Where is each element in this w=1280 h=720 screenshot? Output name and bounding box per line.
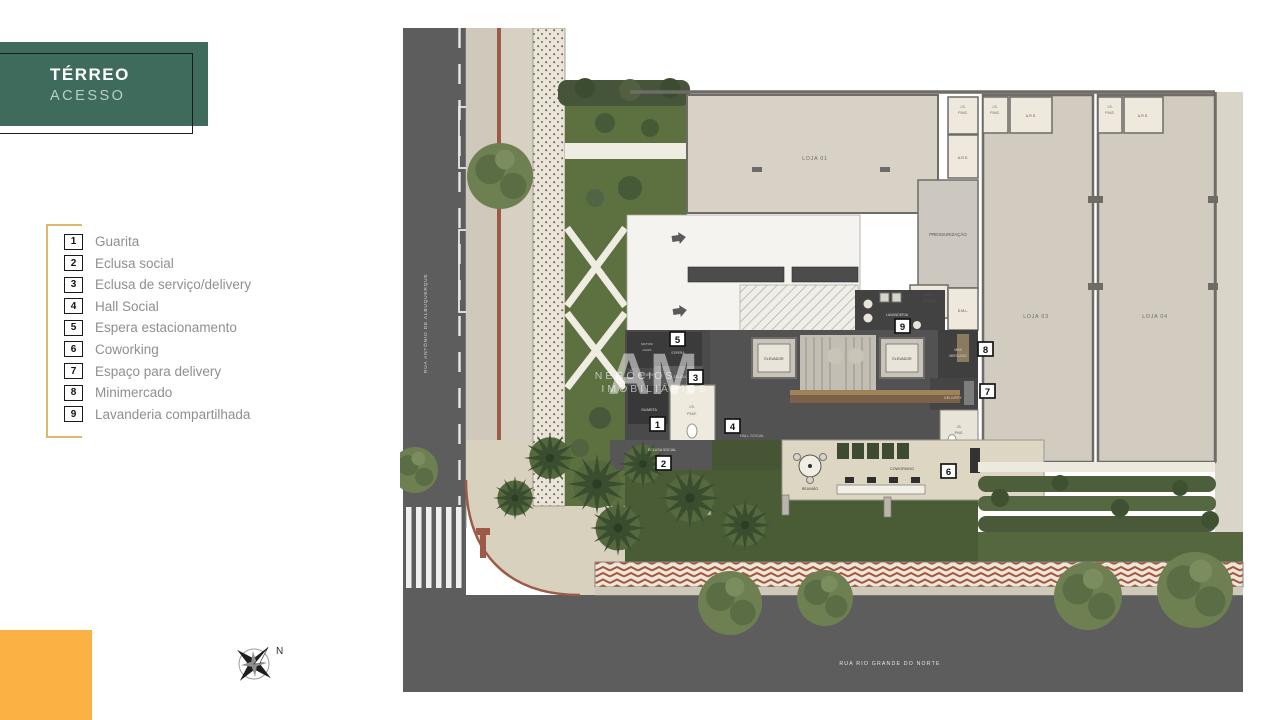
compass-north-label: N	[276, 646, 283, 657]
marker-6: 6	[941, 464, 956, 478]
svg-text:NEGÓCIOS: NEGÓCIOS	[595, 369, 676, 382]
svg-text:P.N.E.: P.N.E.	[687, 412, 696, 416]
legend-item: 6Coworking	[64, 342, 251, 357]
legend-item-number: 3	[64, 277, 83, 293]
marker-1: 1	[650, 417, 665, 431]
legend-item-number: 2	[64, 255, 83, 271]
legend-item: 1Guarita	[64, 234, 251, 249]
svg-text:3: 3	[693, 373, 698, 384]
svg-text:ELEVADOR: ELEVADOR	[764, 357, 784, 361]
svg-text:6: 6	[946, 467, 951, 478]
room-loja-01	[687, 95, 938, 213]
svg-text:9: 9	[900, 322, 905, 333]
site-plan: LOJA 01 LOJA 03 LOJA 04 I.S. P.N.E. I.S.…	[400, 28, 1245, 692]
legend-item-label: Hall Social	[95, 299, 159, 314]
coworking-desk	[837, 485, 925, 494]
legend-item: 5Espera estacionamento	[64, 320, 251, 335]
legend-item-number: 6	[64, 341, 83, 357]
label-delivery: DELIVERY	[944, 396, 962, 400]
marker-3: 3	[688, 370, 703, 384]
legend-item-label: Eclusa de serviço/delivery	[95, 277, 251, 292]
coworking-planters	[837, 443, 909, 459]
svg-text:I.S.: I.S.	[957, 425, 962, 429]
svg-text:CÂMARA: CÂMARA	[922, 299, 937, 303]
svg-text:MERCADO: MERCADO	[949, 354, 967, 358]
marker-8: 8	[978, 342, 993, 356]
garage-door	[688, 267, 784, 282]
floor-subtitle: ACESSO	[50, 88, 208, 104]
floor-title: TÉRREO	[50, 65, 208, 85]
svg-text:I.S.: I.S.	[1107, 105, 1112, 109]
mosaic-walk-horizontal	[595, 562, 1243, 587]
legend-item-label: Coworking	[95, 342, 159, 357]
legend-item: 4Hall Social	[64, 299, 251, 314]
label-loja01: LOJA 01	[802, 156, 828, 162]
label-pressurizacao: PRESSURIZAÇÃO	[929, 232, 967, 237]
page: { "header": { "title": "TÉRREO", "subtit…	[0, 0, 1280, 720]
legend-item-number: 8	[64, 385, 83, 401]
svg-text:P.N.E.: P.N.E.	[958, 111, 967, 115]
label-coworking: COWORKING	[890, 467, 914, 471]
svg-text:1: 1	[655, 420, 661, 431]
street-name-left: RUA ANTÔNIO DE ALBUQUERQUE	[422, 274, 429, 373]
legend-item-number: 9	[64, 406, 83, 422]
marker-7: 7	[980, 384, 995, 398]
legend-item-label: Eclusa social	[95, 256, 174, 271]
legend-item-label: Espera estacionamento	[95, 320, 237, 335]
compass-star	[223, 633, 285, 695]
label-guarita: GUARITA	[641, 408, 657, 412]
marker-5: 5	[670, 332, 685, 346]
svg-text:ELEVADOR: ELEVADOR	[892, 357, 912, 361]
svg-text:8: 8	[983, 345, 988, 356]
legend-item-number: 7	[64, 363, 83, 379]
legend-item-number: 1	[64, 234, 83, 250]
svg-text:A.R.S.: A.R.S.	[958, 156, 968, 160]
label-hall-social: HALL SOCIAL	[740, 434, 764, 438]
room-loja-04	[1098, 95, 1215, 462]
label-loja03: LOJA 03	[1023, 314, 1049, 320]
label-reuniao: REUNIÃO	[802, 486, 819, 491]
svg-text:A.R.S.: A.R.S.	[1138, 114, 1148, 118]
legend-item-number: 4	[64, 298, 83, 314]
svg-text:5: 5	[675, 335, 681, 346]
street-name-bottom: RUA RIO GRANDE DO NORTE	[839, 661, 940, 667]
svg-text:ANTE-: ANTE-	[924, 293, 934, 297]
svg-text:D.M.L.: D.M.L.	[958, 309, 969, 313]
legend-list: 1Guarita2Eclusa social3Eclusa de serviço…	[64, 234, 251, 428]
floor-title-plate: TÉRREO ACESSO	[0, 42, 208, 126]
svg-text:P.N.E.: P.N.E.	[955, 431, 964, 435]
legend-item-label: Minimercado	[95, 385, 172, 400]
compass-rose: N	[220, 628, 292, 696]
legend-item-number: 5	[64, 320, 83, 336]
label-eclusa-social: ECLUSA SOCIAL	[648, 448, 676, 452]
legend-item-label: Espaço para delivery	[95, 364, 221, 379]
legend-item-label: Guarita	[95, 234, 139, 249]
svg-text:I.S.: I.S.	[960, 105, 965, 109]
legend-item: 9Lavanderia compartilhada	[64, 407, 251, 422]
legend-item-label: Lavanderia compartilhada	[95, 407, 250, 422]
label-lavanderia: LAVANDERIA	[886, 313, 909, 317]
svg-text:P.N.E.: P.N.E.	[1105, 111, 1114, 115]
legend-item: 7Espaço para delivery	[64, 364, 251, 379]
svg-text:2: 2	[661, 459, 666, 470]
legend-item: 2Eclusa social	[64, 256, 251, 271]
orange-corner-square	[0, 630, 92, 720]
svg-text:7: 7	[985, 387, 990, 398]
garage-door	[792, 267, 858, 282]
legend-item: 8Minimercado	[64, 385, 251, 400]
svg-text:4: 4	[730, 422, 736, 433]
marker-4: 4	[725, 419, 740, 433]
room-loja-03	[983, 95, 1093, 462]
svg-text:A.R.S.: A.R.S.	[1026, 114, 1036, 118]
svg-text:I.S.: I.S.	[992, 105, 997, 109]
svg-text:P.N.E.: P.N.E.	[990, 111, 999, 115]
svg-text:MINI: MINI	[954, 348, 961, 352]
label-loja04: LOJA 04	[1142, 314, 1168, 320]
legend-item: 3Eclusa de serviço/delivery	[64, 277, 251, 292]
marker-9: 9	[895, 319, 910, 333]
marker-2: 2	[656, 456, 671, 470]
